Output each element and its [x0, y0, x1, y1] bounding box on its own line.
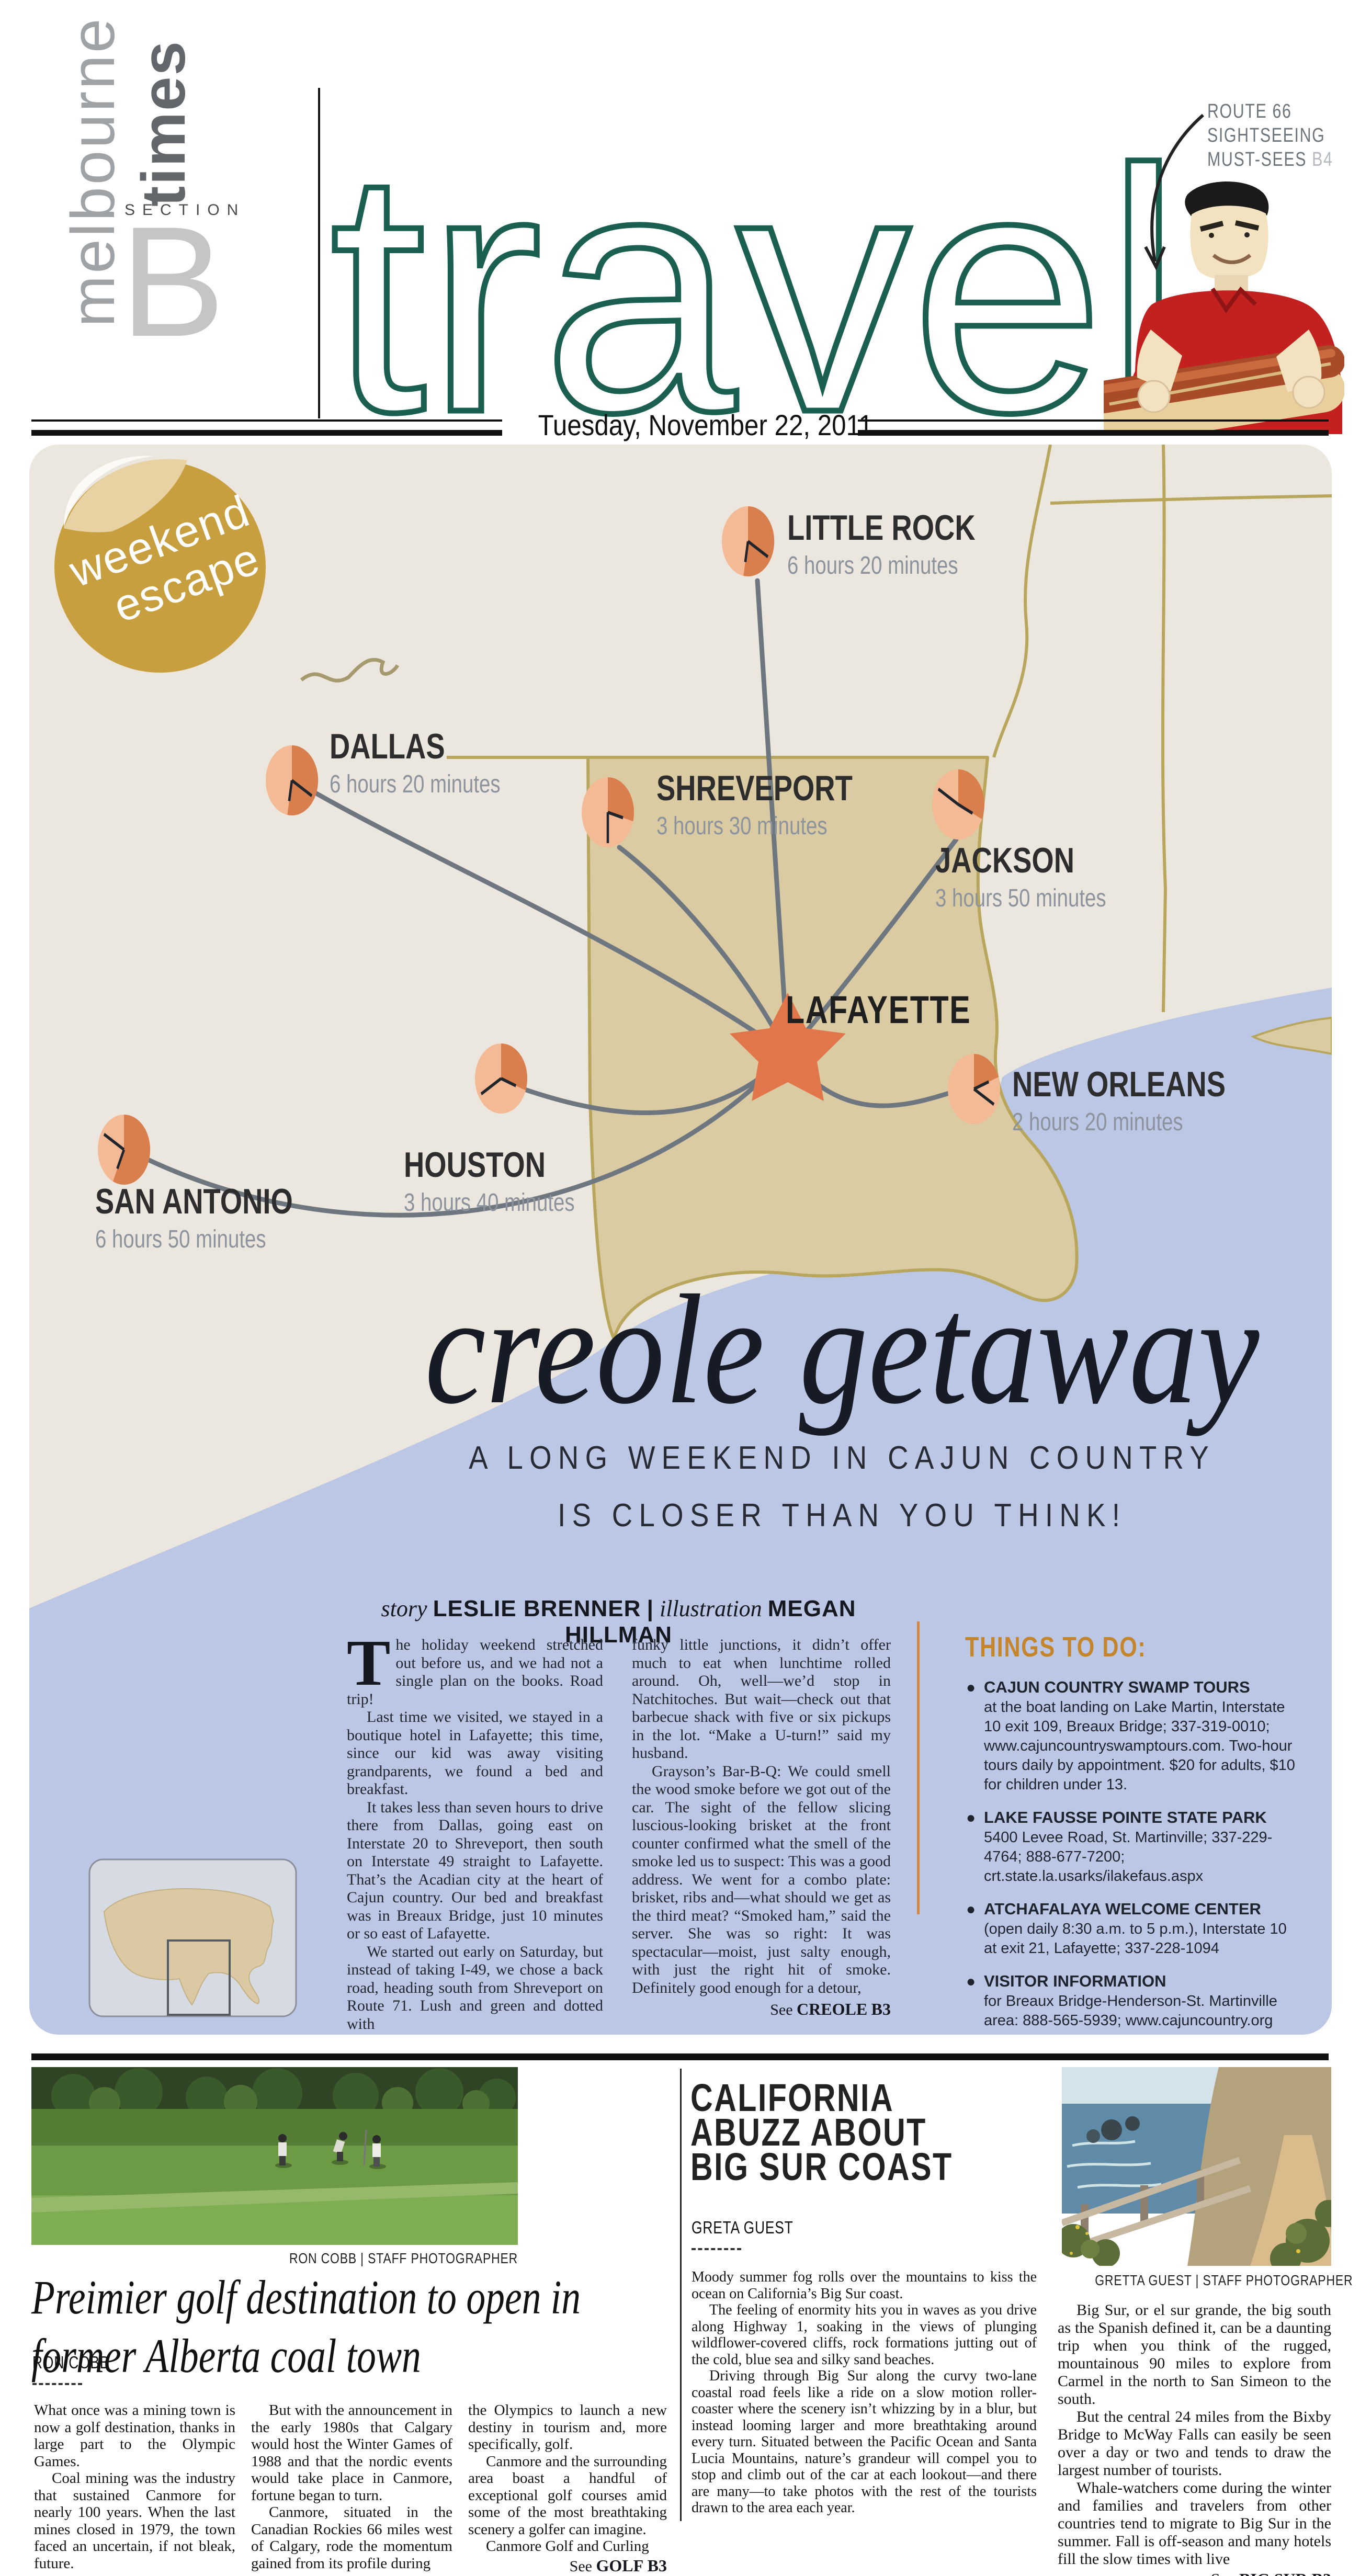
bigsur-byline-rule: [692, 2248, 741, 2250]
things-to-do: THINGS TO DO: ● CAJUN COUNTRY SWAMP TOUR…: [965, 1631, 1300, 2044]
map-city-little-rock: LITTLE ROCK 6 hours 20 minutes: [787, 507, 1023, 580]
teaser-route66: ROUTE 66 SIGHTSEEING MUST-SEES B4: [1207, 99, 1359, 172]
map-city-dallas: DALLAS 6 hours 20 minutes: [330, 726, 543, 799]
map-city-san-antonio: SAN ANTONIO 6 hours 50 minutes: [95, 1181, 342, 1254]
golf-byline-rule: [32, 2383, 82, 2385]
newspaper-page: melbourne times SECTION B travel ROUTE 6…: [0, 0, 1360, 2576]
todo-item: ● LAKE FAUSSE POINTE STATE PARK 5400 Lev…: [984, 1808, 1300, 1886]
golf-column-2: But with the announcement in the early 1…: [251, 2402, 452, 2572]
big-sur-photo: [1062, 2067, 1331, 2266]
bigsur-column-1: Moody summer fog rolls over the mountain…: [692, 2269, 1037, 2516]
section-rule: [31, 2053, 1329, 2060]
clock-marker-jackson: [930, 766, 987, 846]
map-city-houston: HOUSTON 3 hours 40 minutes: [404, 1144, 617, 1217]
masthead-divider: [318, 88, 320, 418]
drop-cap: T: [347, 1636, 395, 1688]
todo-item: ● VISITOR INFORMATION for Breaux Bridge-…: [984, 1972, 1300, 2030]
feature-subtitle-line2: IS CLOSER THAN YOU THINK!: [319, 1497, 1360, 1534]
bullet-icon: ●: [966, 1901, 976, 1919]
article-divider: [680, 2069, 682, 2521]
golf-photo-credit: RON COBB | STAFF PHOTOGRAPHER: [204, 2250, 518, 2267]
muffler-man-illustration: [1104, 173, 1344, 434]
map-city-lafayette: LAFAYETTE: [786, 988, 1017, 1032]
clock-marker-houston: [472, 1040, 530, 1120]
todo-item: ● ATCHAFALAYA WELCOME CENTER (open daily…: [984, 1900, 1300, 1958]
see-bigsur: See BIG SUR B3: [1058, 2570, 1331, 2576]
map-city-new-orleans: NEW ORLEANS 2 hours 20 minutes: [1012, 1064, 1279, 1137]
golf-column-1: What once was a mining town is now a gol…: [34, 2402, 235, 2572]
todo-item: ● CAJUN COUNTRY SWAMP TOURS at the boat …: [984, 1678, 1300, 1795]
sidebar-divider: [917, 1621, 920, 1914]
feature-subtitle-line1: A LONG WEEKEND IN CAJUN COUNTRY: [319, 1439, 1360, 1477]
clock-marker-new-orleans: [945, 1050, 1003, 1130]
see-golf: See GOLF B3: [468, 2557, 667, 2575]
things-to-do-heading: THINGS TO DO:: [965, 1631, 1300, 1663]
svg-text:travel: travel: [330, 98, 1182, 429]
bullet-icon: ●: [966, 1809, 976, 1827]
map-city-jackson: JACKSON 3 hours 50 minutes: [935, 840, 1149, 913]
bullet-icon: ●: [966, 1679, 976, 1697]
map-city-shreveport: SHREVEPORT 3 hours 30 minutes: [656, 768, 902, 841]
section-title: travel: [324, 73, 1203, 429]
masthead: melbourne times SECTION B travel ROUTE 6…: [0, 0, 1360, 445]
bigsur-photo-credit: GRETTA GUEST | STAFF PHOTOGRAPHER: [1038, 2272, 1331, 2289]
dateline: Tuesday, November 22, 2011: [515, 408, 850, 442]
us-inset-map: [89, 1859, 296, 2016]
clock-marker-little-rock: [719, 503, 777, 583]
feature-headline: creole getaway: [319, 1271, 1360, 1428]
golf-photo: [31, 2067, 518, 2245]
feature-column-1: The holiday weekend stretched out before…: [347, 1636, 603, 2033]
clock-marker-san-antonio: [95, 1111, 153, 1191]
bullet-icon: ●: [966, 1973, 976, 1991]
paper-suffix: times: [128, 86, 199, 207]
clock-marker-dallas: [263, 742, 321, 822]
weekend-escape-sticker: weekend escape: [44, 449, 274, 679]
rule-left-of-date: [31, 419, 502, 436]
golf-column-3: the Olympics to launch a new destiny in …: [468, 2402, 667, 2575]
paper-name: melbourne: [58, 86, 129, 327]
bigsur-column-2: Big Sur, or el sur grande, the big south…: [1058, 2301, 1331, 2576]
rule-right-of-date: [858, 419, 1329, 436]
clock-marker-shreveport: [579, 774, 637, 854]
bigsur-headline: CALIFORNIA ABUZZ ABOUT BIG SUR COAST: [690, 2081, 1018, 2184]
golf-byline: RON COBB: [32, 2353, 129, 2373]
section-letter: B: [120, 203, 225, 360]
bigsur-byline: GRETA GUEST: [692, 2218, 819, 2238]
see-creole: See CREOLE B3: [632, 2000, 891, 2019]
feature-column-2: funky little junctions, it didn’t offer …: [632, 1636, 891, 2019]
